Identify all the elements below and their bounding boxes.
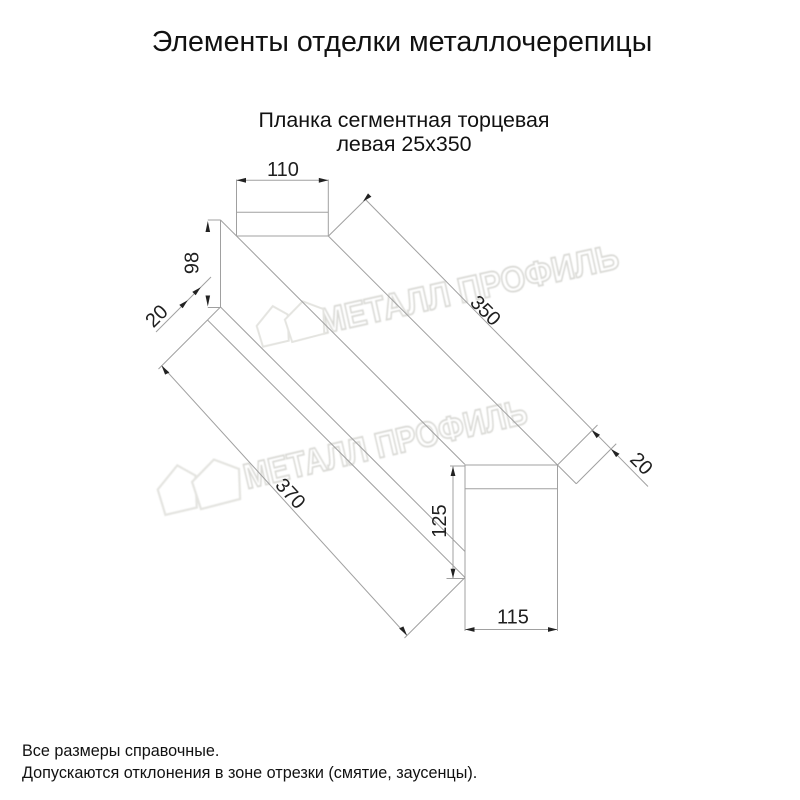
svg-text:115: 115 xyxy=(497,607,529,629)
svg-text:110: 110 xyxy=(267,159,299,181)
svg-text:20: 20 xyxy=(141,301,172,332)
svg-text:20: 20 xyxy=(625,448,656,479)
svg-text:МЕТАЛЛ ПРОФИЛЬ: МЕТАЛЛ ПРОФИЛЬ xyxy=(315,238,622,342)
svg-text:125: 125 xyxy=(429,504,451,537)
svg-text:98: 98 xyxy=(182,252,204,274)
